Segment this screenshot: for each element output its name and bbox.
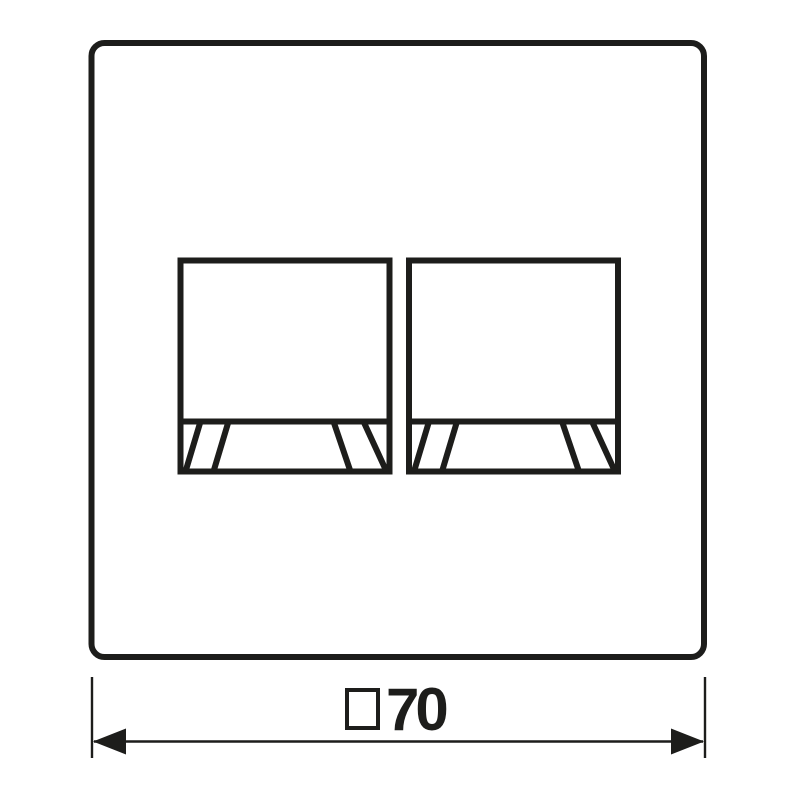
arrowhead-left-icon <box>93 729 126 755</box>
socket-opening-right <box>409 261 618 472</box>
socket-guide-line <box>214 422 229 472</box>
technical-drawing: 70 <box>0 0 800 800</box>
socket-guide-line <box>562 422 579 472</box>
cover-plate-dimension-drawing: 70 <box>0 0 800 800</box>
socket-opening-left <box>181 261 390 472</box>
socket-guide-line <box>334 422 351 472</box>
socket-guide-line <box>414 422 429 472</box>
socket-guide-line <box>364 422 387 472</box>
dimension-value: 70 <box>386 676 446 743</box>
socket-frame <box>409 261 618 472</box>
socket-guide-line <box>186 422 201 472</box>
square-symbol-icon <box>347 690 378 728</box>
arrowhead-right-icon <box>671 729 704 755</box>
dimension-annotation: 70 <box>92 676 705 758</box>
socket-frame <box>181 261 390 472</box>
socket-guide-line <box>442 422 457 472</box>
socket-guide-line <box>592 422 615 472</box>
